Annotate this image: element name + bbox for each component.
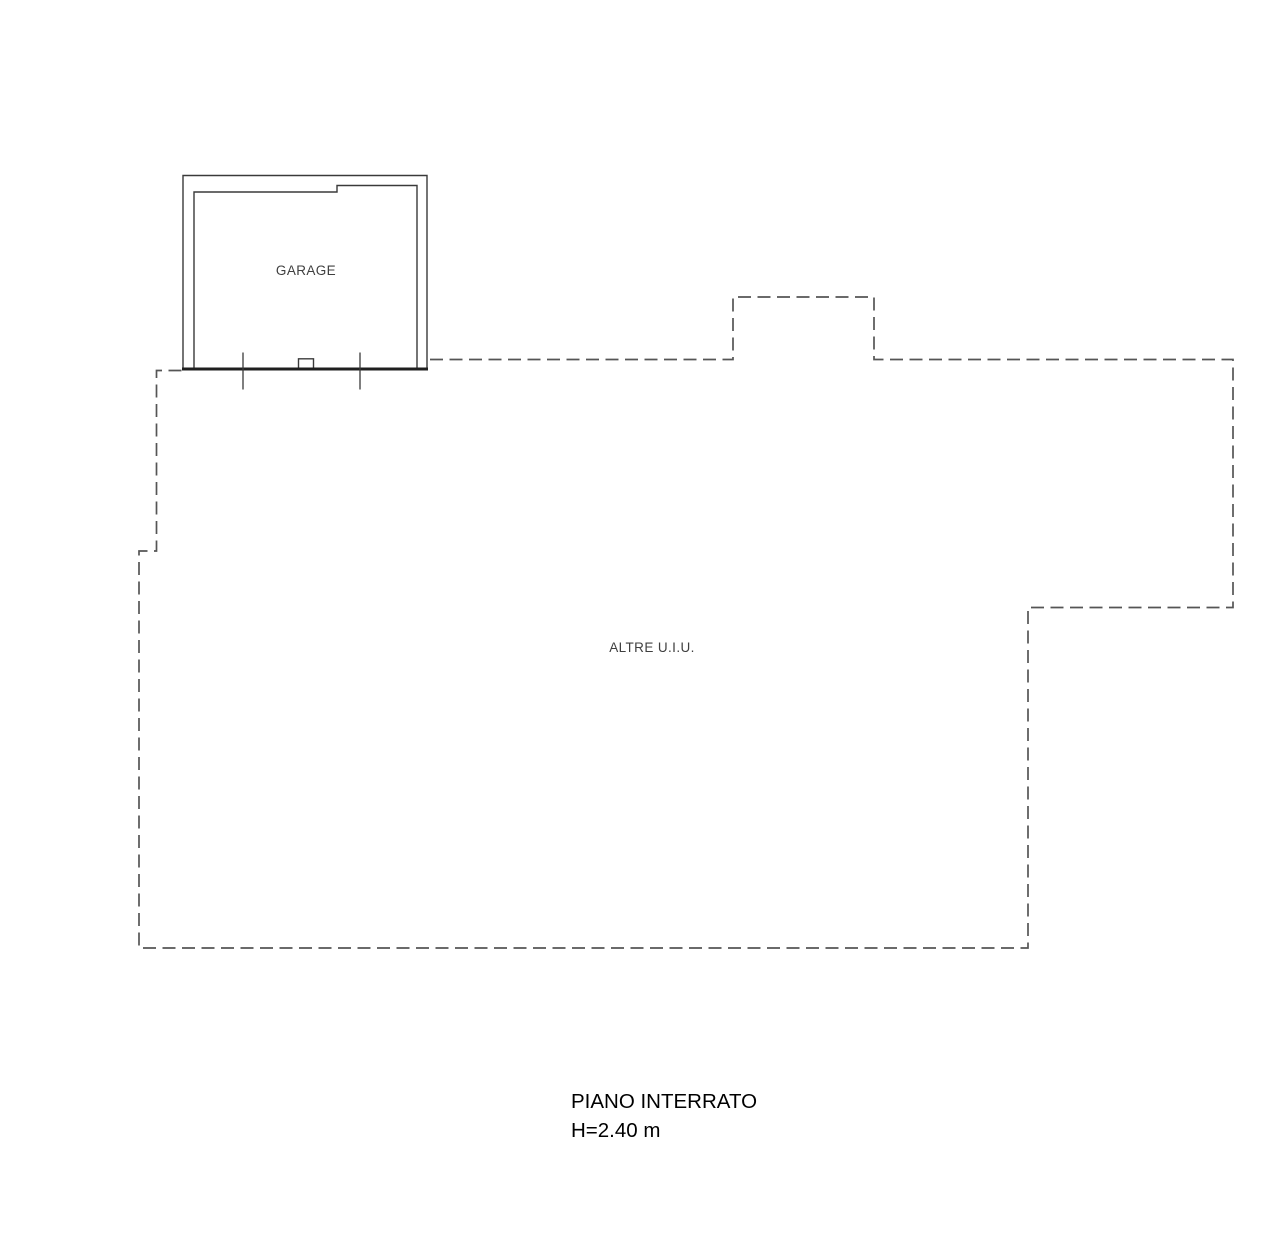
floor-caption: PIANO INTERRATO H=2.40 m: [571, 1087, 757, 1145]
garage-door-sill: [299, 359, 314, 368]
garage-label: GARAGE: [276, 263, 336, 278]
altre-uiu-dashed-boundary: [139, 297, 1233, 948]
floorplan-drawing: [0, 0, 1280, 1245]
floorplan-page: GARAGE ALTRE U.I.U. PIANO INTERRATO H=2.…: [0, 0, 1280, 1245]
floor-height: H=2.40 m: [571, 1116, 757, 1145]
altre-uiu-label: ALTRE U.I.U.: [609, 640, 695, 655]
floor-title: PIANO INTERRATO: [571, 1087, 757, 1116]
